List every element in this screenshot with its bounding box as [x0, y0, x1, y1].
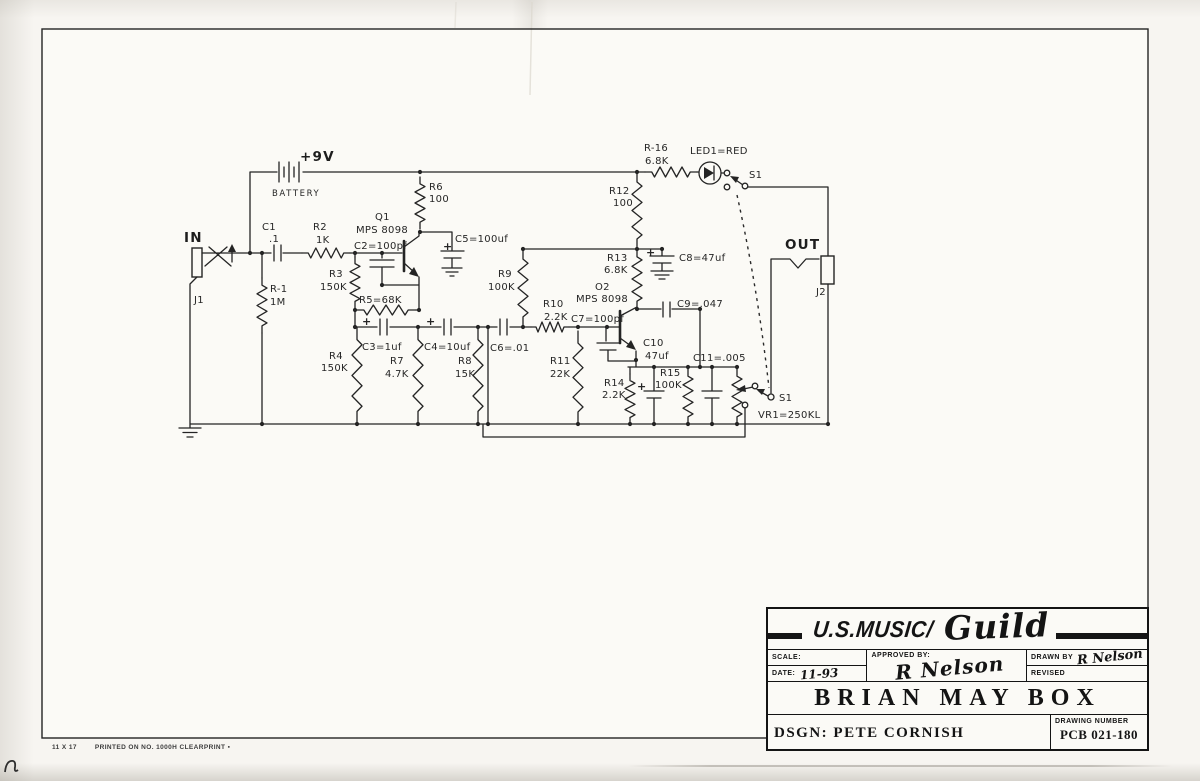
label-c11: C11=.005: [693, 353, 746, 364]
label-c2: C2=100pf: [354, 241, 407, 252]
label-j2: J2: [815, 287, 826, 298]
company-name: U.S.MUSIC/: [812, 616, 935, 643]
label-r3-val: 150K: [320, 282, 347, 293]
date-value: 11-93: [800, 665, 839, 682]
label-s1-lower: S1: [779, 393, 792, 404]
label-plus-c8: +: [646, 246, 656, 259]
label-battery: BATTERY: [272, 189, 320, 199]
logo-dash-right: [1056, 633, 1147, 639]
label-c3: C3=1uf: [362, 342, 402, 353]
date-label: DATE:: [772, 670, 795, 677]
scale-label: SCALE:: [772, 654, 801, 661]
print-note: PRINTED ON NO. 1000H CLEARPRINT ▪: [95, 744, 230, 751]
drawn-by-cell: DRAWN BY R Nelson: [1027, 650, 1147, 665]
label-r10-val: 2.2K: [544, 312, 568, 323]
label-c10-val: 47uf: [645, 351, 669, 362]
label-c9: C9=.047: [677, 299, 723, 310]
label-in: IN: [184, 230, 203, 246]
label-r13-val: 6.8K: [604, 265, 628, 276]
label-r15: R15: [660, 368, 681, 379]
label-c4: C4=10uf: [424, 342, 471, 353]
paper-size-note: 11 X 17: [52, 744, 77, 751]
designer-name: DSGN: PETE CORNISH: [768, 715, 1051, 751]
company-script-name: Guild: [944, 605, 1051, 648]
label-c7: C7=100pf: [571, 314, 624, 325]
label-r16: R-16: [644, 143, 668, 154]
label-r1-val: 1M: [270, 297, 286, 308]
drawing-number-cell: DRAWING NUMBER PCB 021-180: [1051, 715, 1147, 751]
label-r5: R5=68K: [359, 295, 402, 306]
pen-mark: [5, 761, 18, 772]
label-supply: +9V: [300, 149, 335, 165]
drawing-number-value: PCB 021-180: [1055, 727, 1143, 743]
scale-cell: SCALE:: [768, 650, 866, 665]
drawing-number-label: DRAWING NUMBER: [1055, 718, 1143, 725]
label-j1: J1: [193, 295, 204, 306]
label-c6: C6=.01: [490, 343, 529, 354]
label-r11: R11: [550, 356, 571, 367]
label-c5: C5=100uf: [455, 234, 508, 245]
label-q2-type: MPS 8098: [576, 294, 628, 305]
drawn-by-label: DRAWN BY: [1031, 654, 1073, 661]
label-s1-upper: S1: [749, 170, 762, 181]
label-r8: R8: [458, 356, 472, 367]
label-c1-val: .1: [269, 234, 279, 245]
scale-date-column: SCALE: DATE: 11-93: [768, 650, 867, 681]
label-r7-val: 4.7K: [385, 369, 409, 380]
label-r10: R10: [543, 299, 564, 310]
label-plus-c3: +: [362, 315, 372, 328]
label-q1-type: MPS 8098: [356, 225, 408, 236]
label-r4-val: 150K: [321, 363, 348, 374]
label-r8-val: 15K: [455, 369, 475, 380]
label-plus-c5: +: [443, 240, 453, 253]
label-r9: R9: [498, 269, 512, 280]
date-cell: DATE: 11-93: [768, 665, 866, 681]
drawing-title: BRIAN MAY BOX: [768, 681, 1147, 714]
label-r2: R2: [313, 222, 327, 233]
drawn-revised-column: DRAWN BY R Nelson REVISED: [1027, 650, 1147, 681]
label-r12: R12: [609, 186, 630, 197]
label-r1: R-1: [270, 284, 287, 295]
label-r16-val: 6.8K: [645, 156, 669, 167]
label-r14: R14: [604, 378, 625, 389]
label-led1: LED1=RED: [690, 146, 748, 157]
logo-dash-left: [768, 633, 802, 639]
label-r2-val: 1K: [316, 235, 330, 246]
label-r3: R3: [329, 269, 343, 280]
approved-by-cell: APPROVED BY: R Nelson: [867, 650, 1027, 681]
label-r14-val: 2.2K: [602, 390, 626, 401]
label-r13: R13: [607, 253, 628, 264]
revised-label: REVISED: [1031, 670, 1065, 677]
label-c8: C8=47uf: [679, 253, 726, 264]
label-q1: Q1: [375, 212, 390, 223]
crease-top-2: [455, 2, 456, 28]
label-vr1: VR1=250KL: [758, 410, 821, 421]
label-plus-c4: +: [426, 315, 436, 328]
label-r6-val: 100: [429, 194, 449, 205]
label-q2: O2: [595, 282, 610, 293]
label-r6: R6: [429, 182, 443, 193]
label-r15-val: 100K: [655, 380, 682, 391]
label-r7: R7: [390, 356, 404, 367]
label-c1: C1: [262, 222, 276, 233]
led1-symbol: [699, 162, 721, 184]
company-logo: U.S.MUSIC/ Guild: [768, 609, 1147, 649]
label-c10: C10: [643, 338, 664, 349]
label-plus-c10: +: [637, 380, 647, 393]
scanned-schematic-sheet: +9VBATTERYINJ1C1.1R21KR3150KR-11MQ1MPS 8…: [0, 0, 1200, 781]
label-out: OUT: [785, 237, 820, 253]
label-r11-val: 22K: [550, 369, 570, 380]
label-r12-val: 100: [613, 198, 633, 209]
title-block: U.S.MUSIC/ Guild SCALE: DATE: 11-93 APPR…: [766, 607, 1149, 751]
label-r4: R4: [329, 351, 343, 362]
footer-print: 11 X 17 PRINTED ON NO. 1000H CLEARPRINT …: [52, 744, 230, 751]
label-r9-val: 100K: [488, 282, 515, 293]
